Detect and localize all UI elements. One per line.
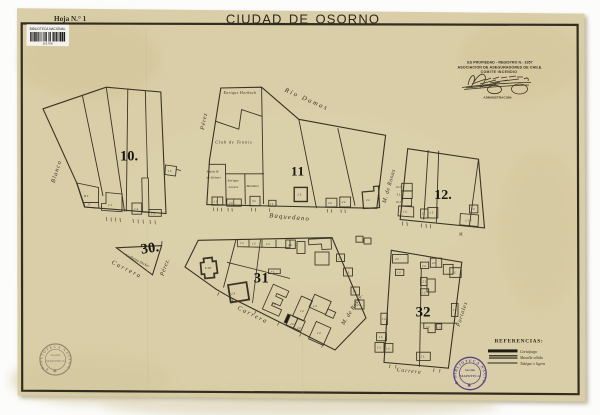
svg-text:30.: 30.: [140, 239, 160, 258]
svg-text:3 L: 3 L: [252, 199, 256, 203]
svg-text:1 L: 1 L: [108, 203, 112, 207]
svg-text:12.: 12.: [434, 188, 452, 203]
svg-text:2 L: 2 L: [426, 325, 430, 329]
svg-text:Sección: Sección: [51, 353, 61, 357]
svg-text:2 L: 2 L: [422, 264, 426, 268]
svg-text:1 L: 1 L: [317, 331, 321, 335]
svg-text:1 L: 1 L: [437, 326, 441, 330]
svg-text:10 L: 10 L: [396, 200, 402, 204]
svg-text:1 L: 1 L: [422, 212, 426, 216]
svg-text:1 L: 1 L: [266, 242, 270, 246]
svg-text:COMITE INCENDIO: COMITE INCENDIO: [481, 70, 518, 74]
svg-text:11: 11: [291, 164, 305, 179]
svg-text:2-3: 2-3: [231, 292, 236, 296]
svg-text:MAPOTECA: MAPOTECA: [46, 359, 65, 363]
svg-text:2 L: 2 L: [298, 193, 302, 197]
svg-text:Muralla sólida: Muralla sólida: [519, 356, 543, 360]
svg-text:ASOCIACION DE ASEGURADORES DE: ASOCIACION DE ASEGURADORES DE CHILE.: [457, 66, 542, 70]
svg-text:1 L: 1 L: [379, 335, 383, 339]
svg-text:1 L: 1 L: [353, 290, 357, 294]
svg-text:1 L: 1 L: [214, 200, 218, 204]
svg-text:1 L: 1 L: [300, 309, 304, 313]
svg-text:1 L.: 1 L.: [403, 210, 408, 214]
svg-text:2 L: 2 L: [229, 201, 233, 205]
svg-text:2 L: 2 L: [346, 271, 350, 275]
svg-text:1 L: 1 L: [240, 241, 244, 245]
svg-text:ES PROPIEDAD - REGISTRO N.- 33: ES PROPIEDAD - REGISTRO N.- 3357: [467, 61, 532, 65]
svg-text:1 L: 1 L: [377, 346, 381, 350]
svg-text:1 L: 1 L: [151, 212, 155, 216]
svg-text:2 L: 2 L: [342, 200, 346, 204]
svg-text:1 L: 1 L: [386, 347, 390, 351]
svg-text:ADMINISTRACION: ADMINISTRACION: [483, 96, 511, 100]
svg-text:1 L: 1 L: [168, 169, 172, 173]
svg-text:7 L: 7 L: [271, 270, 275, 274]
svg-text:2 L: 2 L: [297, 326, 301, 330]
svg-text:32: 32: [416, 305, 431, 321]
svg-text:✱: ✱: [53, 369, 57, 374]
svg-text:1 L: 1 L: [134, 207, 138, 211]
svg-text:2 1 P: 2 1 P: [465, 219, 472, 223]
svg-text:2 L: 2 L: [471, 207, 475, 211]
svg-text:1 L: 1 L: [422, 291, 426, 295]
svg-text:Cortafuego: Cortafuego: [520, 350, 537, 354]
svg-text:Hoja N.° 1: Hoja N.° 1: [54, 15, 87, 23]
svg-text:2 L: 2 L: [395, 257, 399, 261]
svg-text:1 L: 1 L: [453, 308, 457, 312]
svg-text:Lovera: Lovera: [228, 185, 239, 189]
svg-text:1 L: 1 L: [452, 271, 456, 275]
svg-text:1 L: 1 L: [430, 211, 434, 215]
svg-text:REFERENCIAS:: REFERENCIAS:: [495, 339, 544, 345]
svg-text:E.SP: E.SP: [204, 266, 211, 270]
svg-text:10 L: 10 L: [396, 185, 402, 189]
svg-text:Sección: Sección: [465, 368, 475, 372]
svg-text:1 L: 1 L: [397, 271, 401, 275]
svg-text:4 L: 4 L: [288, 243, 292, 247]
svg-text:MAPOTECA: MAPOTECA: [460, 374, 481, 378]
svg-text:Club de Tennis: Club de Tennis: [215, 140, 252, 145]
svg-text:2 L: 2 L: [432, 261, 436, 265]
svg-text:Bendlere: Bendlere: [247, 184, 260, 188]
svg-text:31: 31: [254, 271, 270, 287]
svg-text:B L: B L: [84, 194, 89, 198]
svg-text:1 L: 1 L: [252, 241, 256, 245]
svg-text:161798: 161798: [42, 42, 52, 46]
svg-text:2 L: 2 L: [421, 355, 425, 359]
svg-text:✱: ✱: [467, 383, 471, 388]
svg-text:10.: 10.: [120, 149, 138, 165]
svg-text:Enrique Horbach: Enrique Horbach: [223, 91, 257, 95]
svg-text:2 L: 2 L: [366, 198, 370, 202]
svg-text:2 L: 2 L: [290, 322, 294, 326]
svg-text:1 L: 1 L: [313, 304, 317, 308]
svg-text:2 L: 2 L: [338, 257, 342, 261]
svg-text:7 L: 7 L: [272, 302, 276, 306]
svg-text:CIUDAD DE OSORNO: CIUDAD DE OSORNO: [226, 12, 380, 27]
svg-text:1 L: 1 L: [382, 317, 386, 321]
svg-text:M.: M.: [458, 232, 463, 237]
svg-text:Enrique: Enrique: [227, 179, 240, 183]
svg-text:2 L: 2 L: [328, 201, 332, 205]
svg-text:de Siebert: de Siebert: [207, 176, 222, 180]
svg-text:BIBLIOTECA NACIONAL: BIBLIOTECA NACIONAL: [30, 27, 66, 31]
svg-text:2 L: 2 L: [423, 280, 427, 284]
svg-text:Maria B.: Maria B.: [206, 170, 220, 174]
svg-text:3 L: 3 L: [397, 193, 401, 197]
svg-text:Tabique o ligera: Tabique o ligera: [520, 362, 545, 366]
svg-text:1 L: 1 L: [270, 202, 274, 206]
